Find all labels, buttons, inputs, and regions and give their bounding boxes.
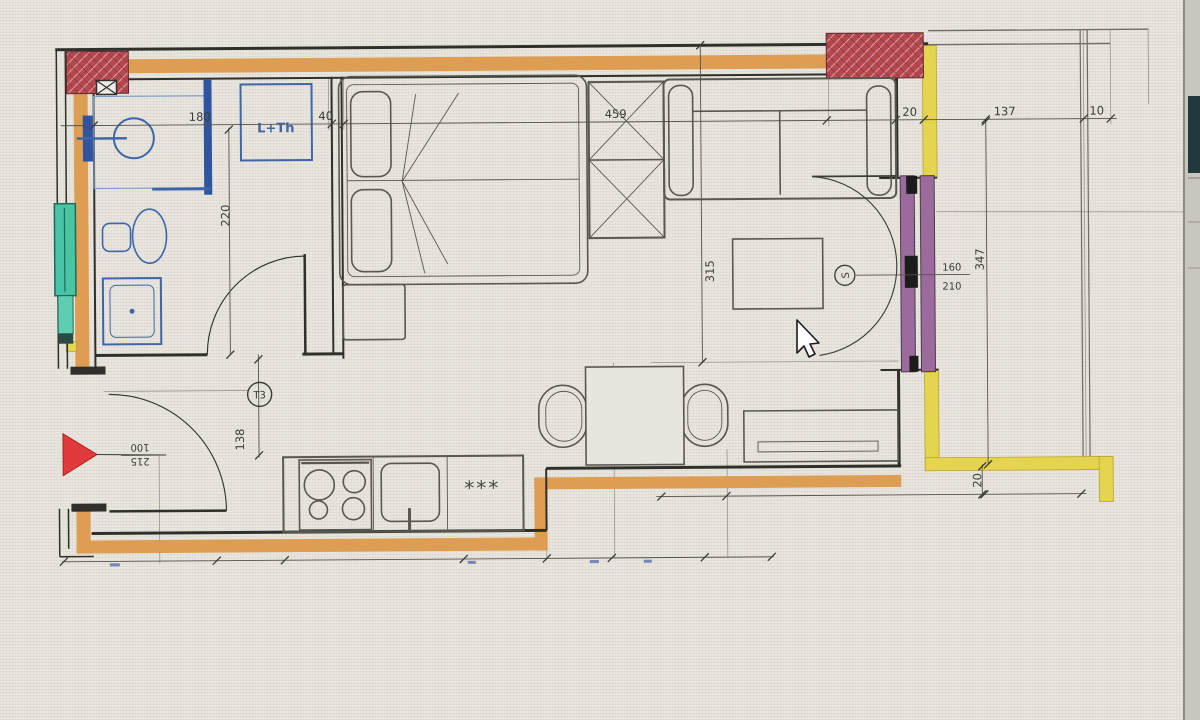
dim-bath-width: 180 — [189, 110, 211, 124]
bed — [338, 75, 587, 285]
entry-door-size: 215 100 — [121, 441, 159, 466]
washer-dryer-label: L+Th — [257, 121, 294, 136]
kitchen-sink — [381, 463, 439, 530]
shower-tray — [103, 278, 161, 344]
pillow-bottom — [351, 189, 392, 271]
tag-socket-label: S — [841, 272, 852, 278]
sofa-arm-left — [669, 85, 694, 195]
dim-partition: 40 — [318, 109, 333, 123]
terrace-door-width-label: 160 — [942, 262, 961, 273]
entry-arrow — [63, 433, 166, 476]
dining-chair-right — [682, 384, 728, 446]
terrace-door-swing — [812, 176, 897, 356]
terrace-door-size: 160 210 — [942, 262, 961, 292]
shower-partition — [203, 80, 212, 195]
terrace-door-height-label: 210 — [942, 281, 961, 292]
dim-living-depth: 315 — [703, 260, 717, 282]
tag-socket: S — [835, 265, 855, 285]
toilet — [102, 209, 166, 263]
column-top-right — [826, 33, 923, 79]
wardrobe — [588, 82, 664, 239]
dim-wall-thickness: 20 — [902, 105, 917, 119]
screen-edge — [1184, 0, 1200, 720]
coffee-table — [733, 238, 823, 309]
bottom-wall-orange-right — [534, 475, 901, 490]
entry-door — [109, 394, 227, 512]
sofa — [663, 78, 896, 200]
pillow-top — [351, 91, 392, 176]
dim-terrace-wall: 20 — [970, 473, 984, 488]
top-wall-orange — [71, 54, 828, 73]
nightstand — [343, 284, 405, 339]
floor-plan-canvas[interactable]: L+Th *** — [0, 0, 1200, 720]
dim-terrace-width: 137 — [994, 104, 1016, 118]
dim-bath-depth: 220 — [218, 205, 232, 227]
edge-dark-panel — [1188, 96, 1200, 173]
stove — [299, 460, 371, 531]
blanket-fold — [402, 93, 460, 273]
entry-door-height: 215 — [131, 455, 150, 466]
dim-terrace-edge: 10 — [1089, 103, 1104, 117]
entry-door-width: 100 — [130, 441, 149, 452]
column-top-left — [66, 51, 128, 94]
tv-stand — [744, 410, 898, 462]
dining-chair-left — [539, 385, 587, 447]
mouse-cursor — [797, 320, 819, 357]
dim-right-depth: 347 — [973, 248, 987, 270]
terrace-door — [900, 176, 935, 372]
dim-hall-width: 138 — [233, 428, 247, 450]
photographed-screen: L+Th *** — [0, 0, 1200, 720]
dim-bedroom-width: 459 — [605, 107, 627, 121]
tag-t3-label: T3 — [252, 390, 266, 401]
bathroom-door — [207, 254, 306, 355]
tag-t3: T3 — [248, 382, 272, 406]
fridge-label: *** — [464, 476, 500, 500]
bottom-wall-orange-left — [77, 537, 547, 553]
dining-table — [585, 366, 684, 465]
